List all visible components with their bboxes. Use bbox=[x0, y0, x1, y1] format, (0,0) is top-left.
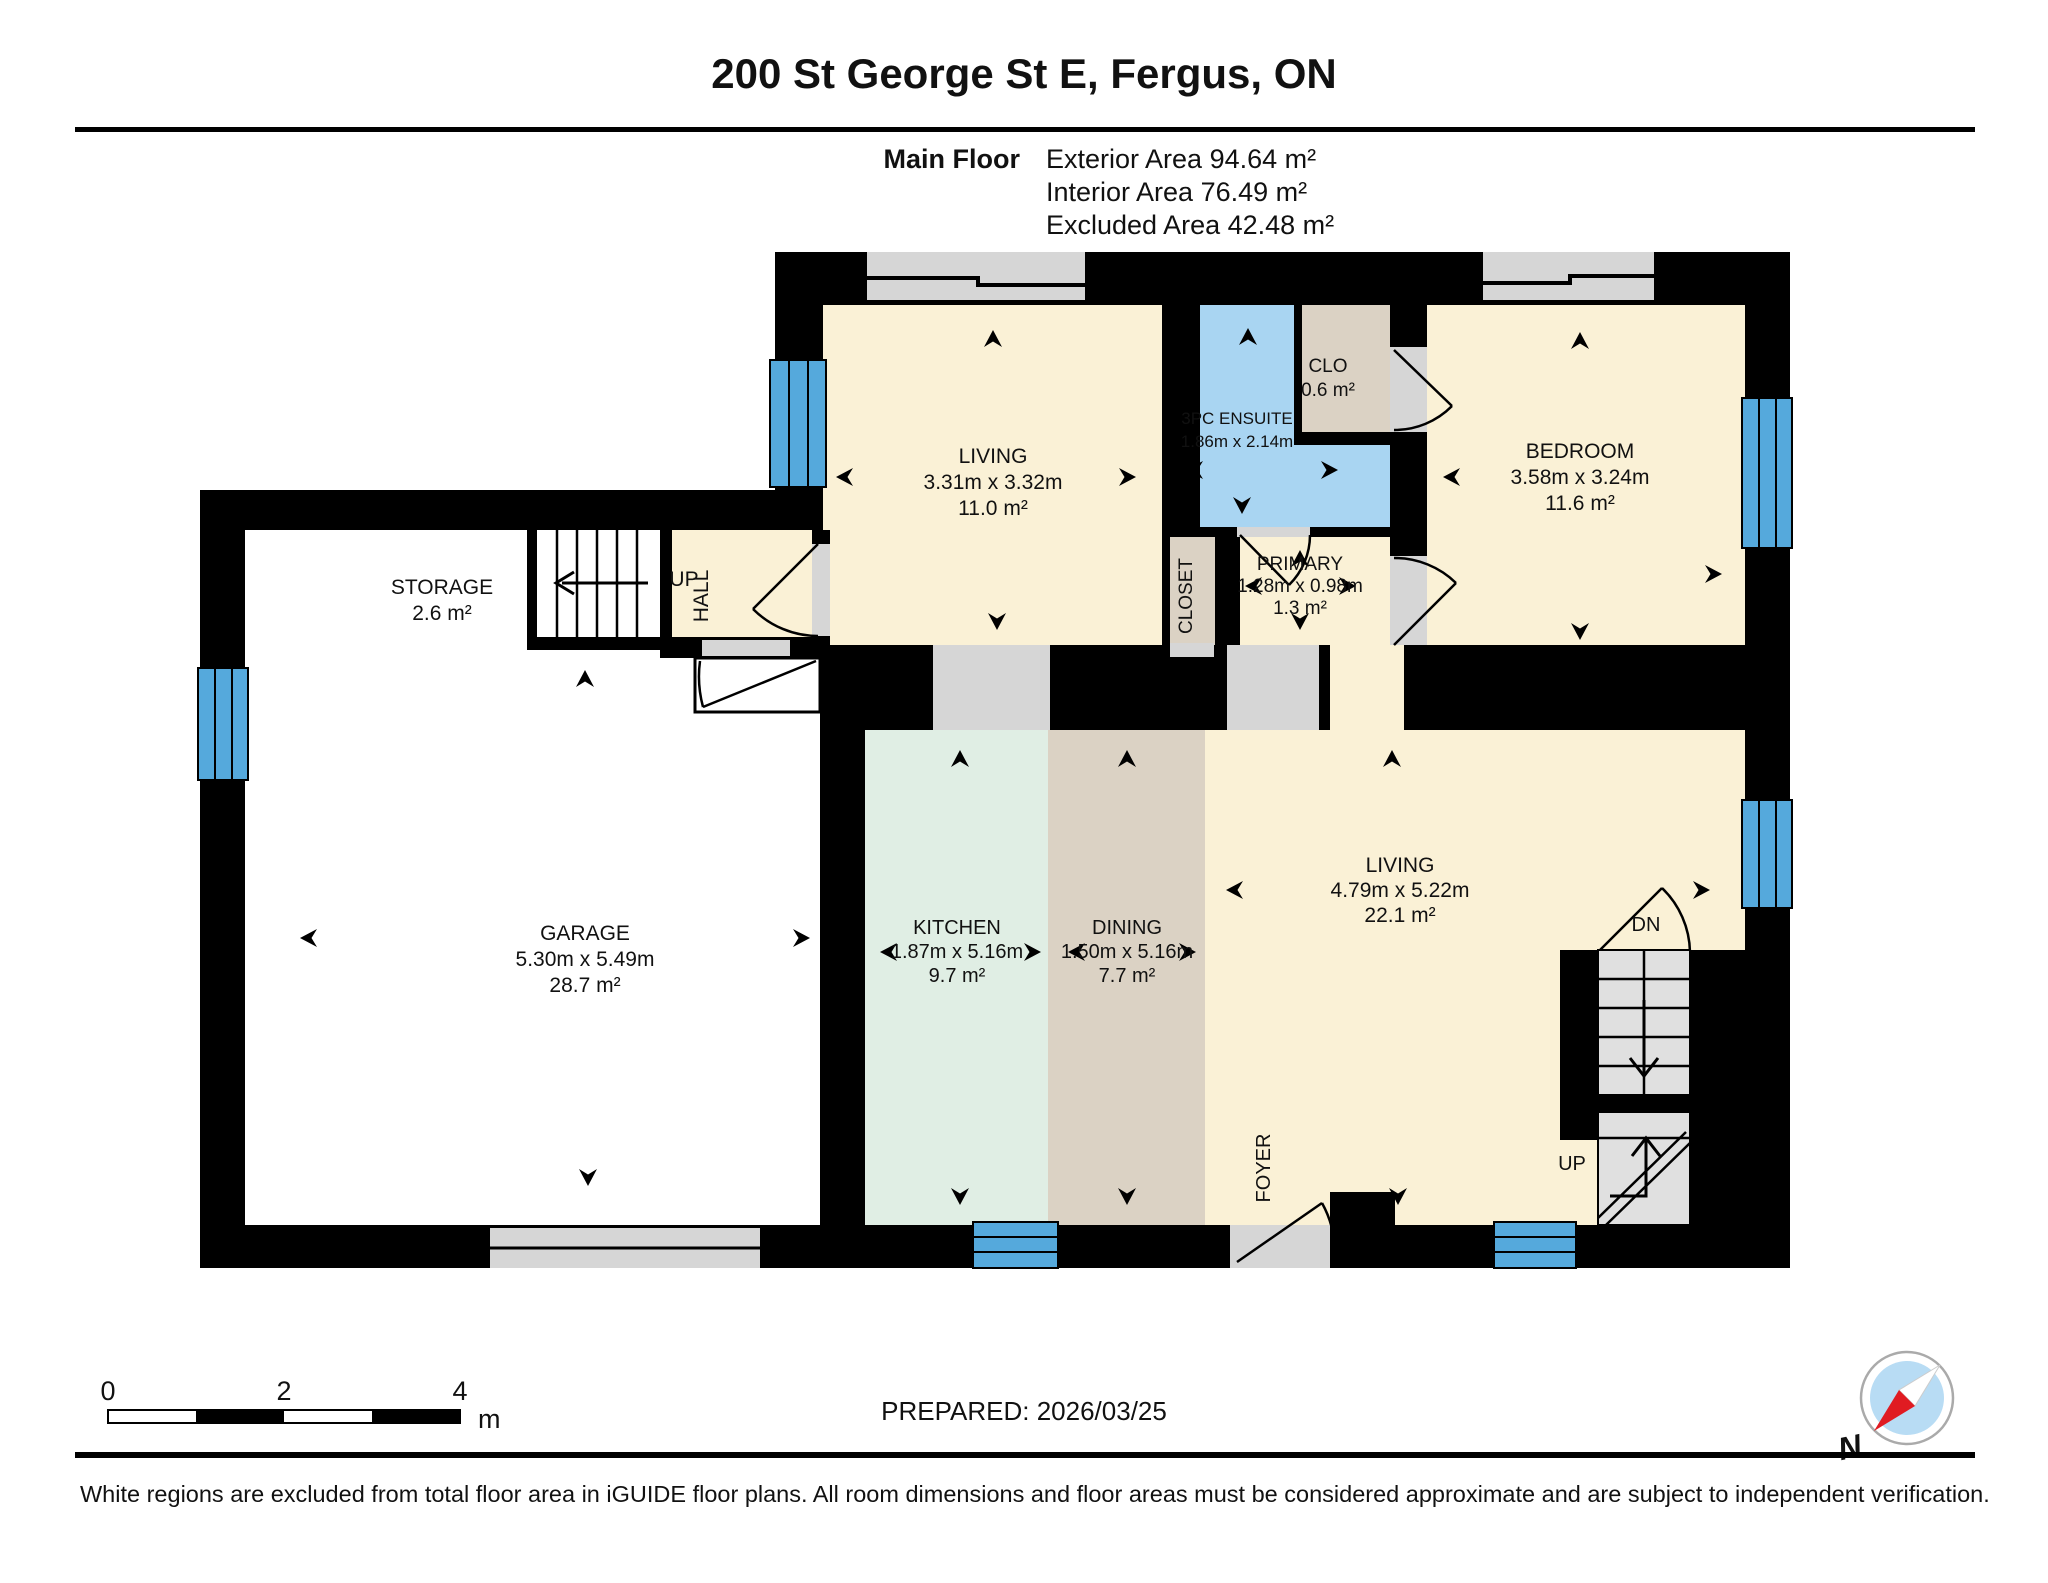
stairs-separator bbox=[1598, 1095, 1690, 1112]
footer: PREPARED: 2026/03/25 N White regions are… bbox=[75, 1352, 1990, 1507]
stairs-up-flight bbox=[1598, 1112, 1690, 1225]
label-dining-dims: 1.50m x 5.16m bbox=[1061, 941, 1193, 963]
label-ensuite-dims: 1.86m x 2.14m bbox=[1181, 432, 1293, 451]
label-primary-dims: 1.28m x 0.98m bbox=[1237, 576, 1363, 597]
window-bottom-dining bbox=[973, 1222, 1058, 1268]
room-ensuite-ext bbox=[1302, 445, 1390, 527]
opening-closet bbox=[1170, 643, 1214, 657]
header-divider bbox=[75, 127, 1975, 132]
label-dining-area: 7.7 m² bbox=[1099, 965, 1156, 987]
window-bottom-living bbox=[1494, 1222, 1576, 1268]
label-dining-name: DINING bbox=[1092, 917, 1162, 939]
stairs-right bbox=[1598, 950, 1690, 1225]
floor-label: Main Floor bbox=[884, 144, 1021, 174]
label-primary-name: PRIMARY bbox=[1257, 554, 1344, 575]
window-bedroom-east bbox=[1742, 398, 1792, 548]
label-bedroom-area: 11.6 m² bbox=[1545, 492, 1615, 515]
floorplan-page: 200 St George St E, Fergus, ON Main Floo… bbox=[0, 0, 2048, 1583]
label-living-upper-dims: 3.31m x 3.32m bbox=[924, 471, 1063, 494]
wall-foyer-stub bbox=[1330, 1192, 1395, 1225]
label-foyer-name: FOYER bbox=[1253, 1134, 1275, 1203]
wall-ensuite-clo bbox=[1294, 305, 1302, 445]
wall-closet-left bbox=[1162, 537, 1170, 645]
scale-tick-0: 0 bbox=[100, 1376, 115, 1406]
label-bedroom-name: BEDROOM bbox=[1526, 440, 1635, 463]
page-title: 200 St George St E, Fergus, ON bbox=[711, 50, 1337, 97]
scale-bar-seg2 bbox=[372, 1410, 460, 1423]
label-ensuite-name: 3PC ENSUITE bbox=[1181, 409, 1292, 428]
wall-stair-left bbox=[1560, 950, 1598, 1140]
label-kitchen-dims: 1.87m x 5.16m bbox=[891, 941, 1023, 963]
label-primary-area: 1.3 m² bbox=[1273, 598, 1327, 619]
label-storage-name: STORAGE bbox=[391, 576, 493, 599]
label-living-lower-name: LIVING bbox=[1366, 854, 1435, 877]
floorplan-svg: 200 St George St E, Fergus, ON Main Floo… bbox=[0, 0, 2048, 1583]
label-storage-area: 2.6 m² bbox=[412, 602, 472, 625]
wall-clo-bottom bbox=[1302, 432, 1390, 445]
window-living-lower-east bbox=[1742, 800, 1792, 908]
opening-clo bbox=[1390, 347, 1427, 432]
compass-icon: N bbox=[1835, 1352, 1953, 1467]
wall-lower-east bbox=[1745, 658, 1790, 1265]
prepared-date: PREPARED: 2026/03/25 bbox=[881, 1396, 1167, 1426]
label-hall-name: HALL bbox=[690, 570, 713, 623]
label-bedroom-dims: 3.58m x 3.24m bbox=[1511, 466, 1650, 489]
compass-n-label: N bbox=[1835, 1427, 1866, 1467]
label-kitchen-area: 9.7 m² bbox=[929, 965, 986, 987]
scale-unit: m bbox=[478, 1404, 501, 1434]
label-stairs-up: UP bbox=[1558, 1153, 1586, 1175]
label-living-upper-area: 11.0 m² bbox=[958, 497, 1028, 520]
label-clo-name: CLO bbox=[1308, 356, 1347, 377]
room-fills bbox=[245, 305, 1745, 1225]
label-clo-area: 0.6 m² bbox=[1301, 380, 1355, 401]
scale-bar-seg1 bbox=[196, 1410, 284, 1423]
disclaimer-text: White regions are excluded from total fl… bbox=[80, 1481, 1990, 1507]
opening-living-gap bbox=[1330, 645, 1404, 730]
excluded-area: Excluded Area 42.48 m² bbox=[1046, 210, 1334, 240]
opening-kitchen bbox=[933, 645, 1050, 730]
window-garage-west bbox=[198, 668, 248, 780]
opening-hall-living bbox=[812, 544, 830, 636]
stairs-left bbox=[527, 522, 672, 650]
opening-back-door bbox=[702, 640, 790, 656]
scale-tick-2: 2 bbox=[276, 1376, 291, 1406]
label-stairs-dn: DN bbox=[1632, 914, 1661, 936]
scale-tick-4: 4 bbox=[452, 1376, 467, 1406]
wall-lower-west bbox=[820, 650, 865, 1265]
label-closet-name: CLOSET bbox=[1176, 558, 1197, 634]
label-garage-name: GARAGE bbox=[540, 922, 630, 945]
wall-stair-right bbox=[1690, 950, 1745, 1225]
label-living-lower-area: 22.1 m² bbox=[1364, 904, 1435, 927]
label-living-upper-name: LIVING bbox=[959, 445, 1028, 468]
header: 200 St George St E, Fergus, ON Main Floo… bbox=[75, 50, 1975, 240]
scale-bar: 0 2 4 m bbox=[100, 1376, 500, 1434]
wall-living-ensuite bbox=[1162, 252, 1200, 537]
interior-area: Interior Area 76.49 m² bbox=[1046, 177, 1307, 207]
wall-left-west bbox=[200, 490, 245, 1265]
label-garage-dims: 5.30m x 5.49m bbox=[516, 948, 655, 971]
opening-hallway bbox=[1227, 645, 1319, 730]
footer-divider bbox=[75, 1452, 1975, 1458]
exterior-area: Exterior Area 94.64 m² bbox=[1046, 144, 1316, 174]
wall-left-top bbox=[200, 490, 775, 530]
window-living-upper-west bbox=[770, 360, 826, 487]
opening-ensuite bbox=[1237, 527, 1310, 537]
label-kitchen-name: KITCHEN bbox=[913, 917, 1001, 939]
label-living-lower-dims: 4.79m x 5.22m bbox=[1331, 879, 1470, 902]
label-garage-area: 28.7 m² bbox=[549, 974, 620, 997]
